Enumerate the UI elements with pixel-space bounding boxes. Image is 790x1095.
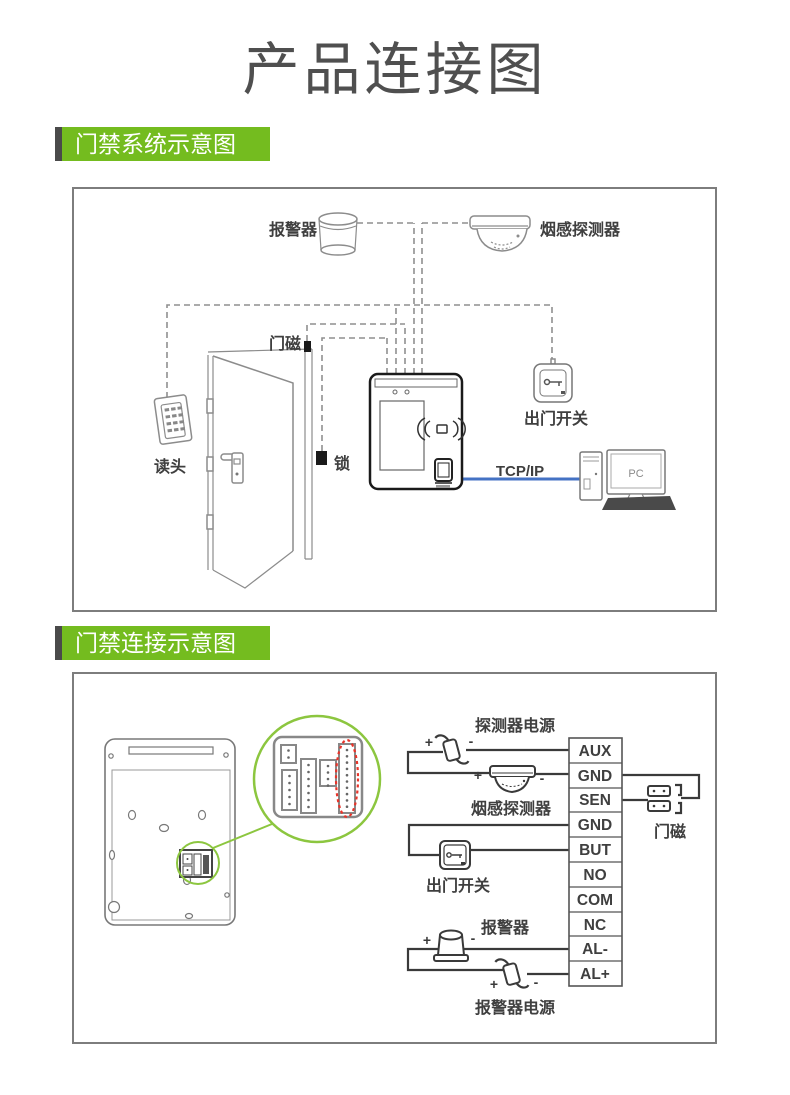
terminal-pin-gnd2: GND [578,817,612,834]
polarity-plus: + [474,767,482,783]
terminal-strip: AUX GND SEN GND BUT NO COM NC AL- AL+ [569,738,622,986]
system-wiring-dashes [167,223,552,451]
wiring-diagram-panel: + - 探测器电源 + - 烟感探测器 出门开关 [72,672,717,1044]
polarity-minus: - [469,733,474,749]
page: 产品连接图 门禁系统示意图 报警器 [0,0,790,1095]
section-badge-system: 门禁系统示意图 [55,127,270,161]
detector-power-label: 探测器电源 [475,716,555,735]
badge-accent-bar [55,626,62,660]
lock-label: 锁 [334,454,350,473]
pc-keyboard-icon [602,496,676,510]
pc-screen-label: PC [628,468,643,480]
terminal-pin-nc: NC [584,917,606,934]
door-panel [207,355,293,588]
system-diagram-panel: 报警器 烟感探测器 [72,187,717,612]
section-badge-wiring-label: 门禁连接示意图 [62,626,270,660]
smoke-detector-label: 烟感探测器 [540,220,621,239]
pc-tower-icon [580,452,602,500]
lock-sensor [316,451,327,465]
terminal-pin-no: NO [583,867,606,884]
smoke-detector-icon [470,216,530,251]
alarm-label: 报警器 [269,220,318,239]
terminal-pin-com: COM [577,892,613,909]
terminal-pin-al-minus: AL- [582,941,608,958]
alarm-siren-icon [434,931,468,962]
panel-connector-block [180,850,212,877]
terminal-pin-gnd1: GND [578,768,612,785]
detector-power-adapter-icon [435,730,469,769]
smoke-detector-label: 烟感探测器 [471,799,552,818]
exit-button-icon [440,841,470,869]
page-title: 产品连接图 [0,24,790,106]
alarm-label: 报警器 [481,918,530,937]
card-module-icon [435,459,452,488]
system-diagram: 报警器 烟感探测器 [74,189,715,610]
terminal-pin-sen: SEN [579,792,611,809]
access-terminal-icon [370,374,465,489]
badge-accent-bar [55,127,62,161]
exit-button-label: 出门开关 [426,876,490,895]
smoke-detector-icon [490,766,535,792]
pc-monitor-icon: PC [607,450,665,500]
polarity-plus: + [425,734,433,750]
door-magnet-icon [648,785,681,813]
wiring-diagram: + - 探测器电源 + - 烟感探测器 出门开关 [74,674,715,1042]
polarity-minus: - [540,770,545,786]
reader-label: 读头 [154,457,186,476]
door-magnet-label: 门磁 [269,334,301,353]
terminal-pin-but: BUT [579,842,611,859]
tcp-label: TCP/IP [496,463,544,480]
connector-board [274,737,362,817]
terminal-pin-aux: AUX [579,743,612,760]
polarity-minus: - [534,974,539,990]
section-badge-system-label: 门禁系统示意图 [62,127,270,161]
polarity-minus: - [471,930,476,946]
polarity-plus: + [490,976,498,992]
exit-button-icon [534,359,572,402]
section-badge-wiring: 门禁连接示意图 [55,626,270,660]
door-magnet-sensor [304,341,311,352]
door-handle-icon [221,453,243,483]
alarm-power-label: 报警器电源 [475,998,555,1017]
reader-icon [154,395,192,445]
exit-button-label: 出门开关 [524,409,588,428]
alarm-siren-icon [319,213,357,255]
terminal-pin-al-plus: AL+ [580,966,610,983]
device-back-panel [105,739,235,925]
polarity-plus: + [423,932,431,948]
alarm-power-adapter-icon [495,954,529,993]
door-magnet-label: 门磁 [654,822,686,841]
